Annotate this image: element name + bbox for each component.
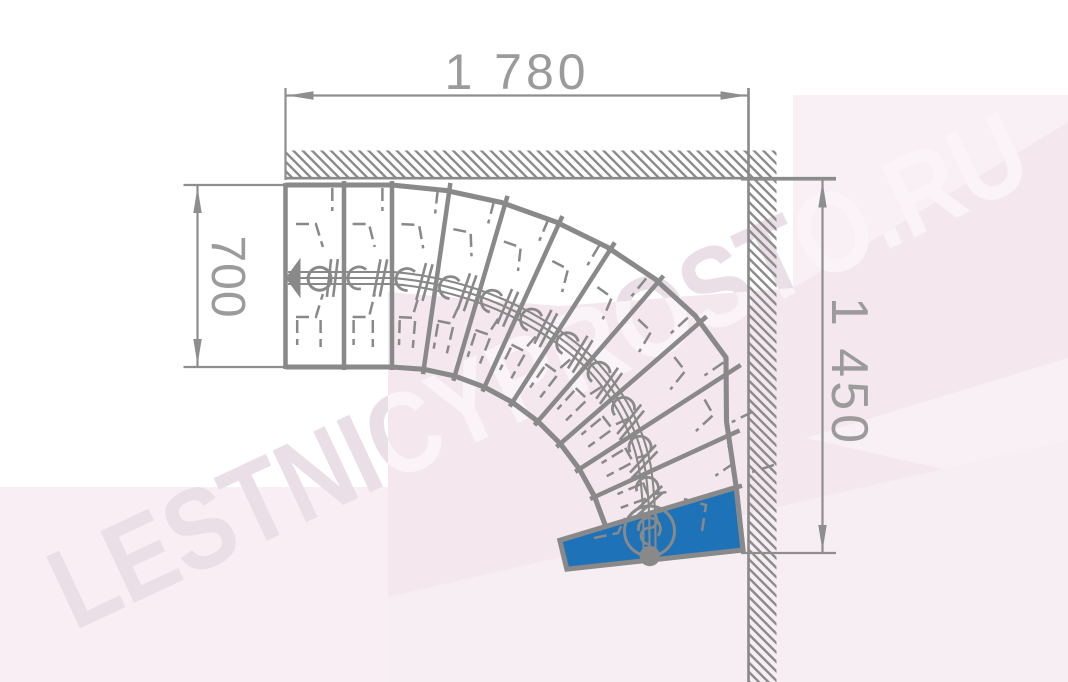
svg-text:700: 700 — [201, 235, 254, 318]
svg-text:1 450: 1 450 — [820, 297, 878, 447]
svg-text:1 780: 1 780 — [444, 44, 589, 100]
